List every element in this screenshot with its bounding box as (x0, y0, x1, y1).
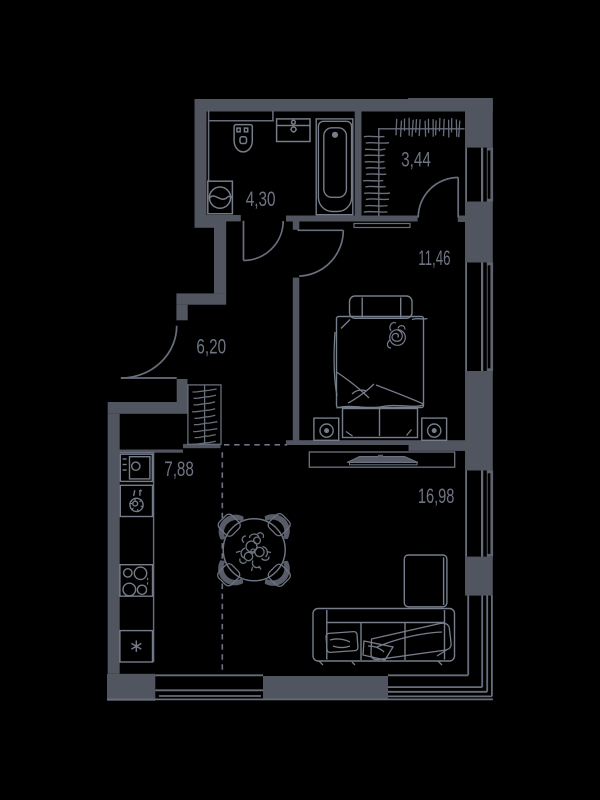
svg-text:7,88: 7,88 (164, 456, 194, 480)
svg-text:6,20: 6,20 (196, 334, 226, 358)
svg-text:11,46: 11,46 (418, 246, 450, 270)
svg-text:3,44: 3,44 (401, 147, 431, 171)
svg-text:16,98: 16,98 (418, 483, 455, 508)
svg-text:4,30: 4,30 (246, 186, 276, 210)
